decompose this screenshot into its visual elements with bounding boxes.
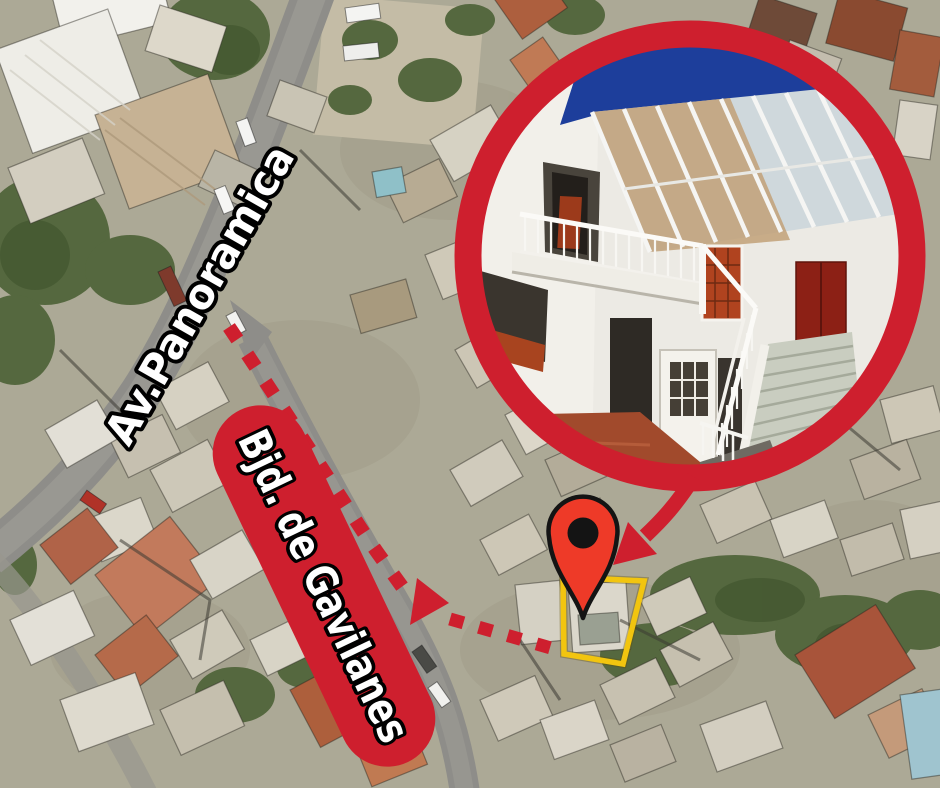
property-location-map: Bjd. de Gavilanes Av.Panoramica [0,0,940,788]
